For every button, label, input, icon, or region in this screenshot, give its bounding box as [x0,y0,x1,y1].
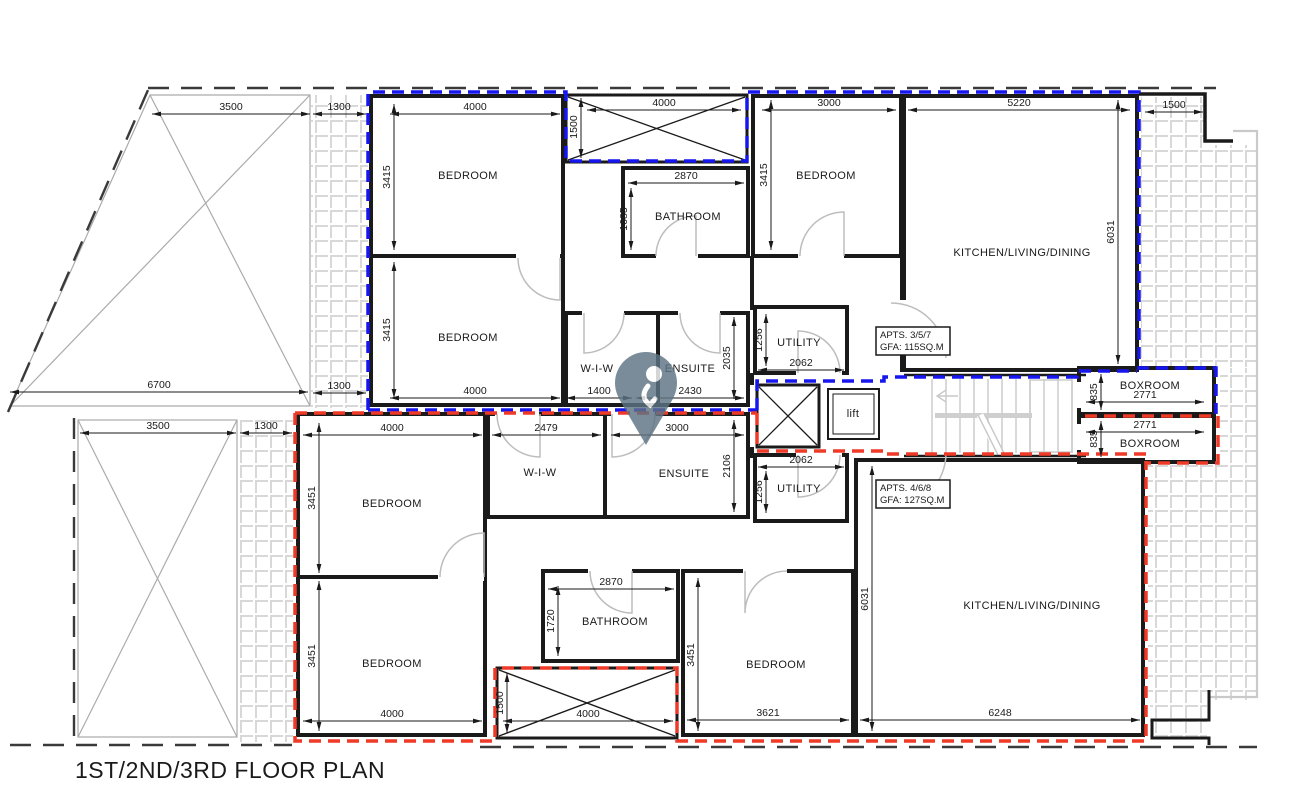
room-label: BATHROOM [655,211,721,223]
dim-label: 2771 [1133,419,1157,431]
apartment-label-lower: APTS. 4/6/8 GFA: 127SQ.M [876,480,950,508]
dim-label: 6700 [147,379,171,391]
dim-label: 3415 [381,165,393,189]
floor-plan-canvas: 3500 1300 4000 1500 4000 3000 5220 1500 … [0,0,1295,799]
room-label: W-I-W [524,467,557,479]
room-label: KITCHEN/LIVING/DINING [963,600,1100,612]
dim-label: 6031 [859,587,871,611]
dim-label: 2035 [721,346,733,370]
room-label: lift [847,408,860,420]
dim-label: 4000 [652,97,676,109]
dim-label: 2106 [721,454,733,478]
stairs [932,379,1072,455]
dim-label: 2062 [789,357,813,369]
room-label: BEDROOM [362,658,422,670]
dim-label: 1500 [494,691,506,715]
dim-label: 6031 [1105,220,1117,244]
dim-label: 1300 [254,420,278,432]
drawing-title: 1ST/2ND/3RD FLOOR PLAN [75,757,385,783]
dim-label: 1300 [327,101,351,113]
dim-label: 1300 [327,380,351,392]
dim-label: 4000 [380,422,404,434]
dim-label: 3621 [756,707,780,719]
dim-label: 3500 [146,420,170,432]
dim-label: 3451 [306,644,318,668]
room-label: BATHROOM [582,616,648,628]
room-label: UTILITY [777,483,821,495]
dim-label: 3500 [219,101,243,113]
dim-label: 3451 [685,643,697,667]
dim-label: 5220 [1007,97,1031,109]
dim-label: 4000 [463,385,487,397]
dim-label: 3415 [381,318,393,342]
apartment-upper-gfa: GFA: 115SQ.M [880,342,944,353]
dim-label: 1720 [545,609,557,633]
dim-label: 2870 [674,170,698,182]
dim-label: 4000 [576,708,600,720]
room-label: BEDROOM [438,170,498,182]
apartment-lower-gfa: GFA: 127SQ.M [880,495,944,506]
dim-label: 3000 [665,422,689,434]
room-label: UTILITY [777,337,821,349]
terrace-cross-left-top [10,95,310,406]
dim-label: 2479 [534,422,558,434]
room-label: W-I-W [581,363,614,375]
room-label: KITCHEN/LIVING/DINING [953,247,1090,259]
room-label: BEDROOM [362,498,422,510]
dim-label: 1256 [753,480,765,504]
room-label: BOXROOM [1120,380,1180,392]
dim-label: 4000 [463,101,487,113]
dim-label: 1256 [753,328,765,352]
dim-label: 2430 [678,385,702,397]
walls [298,94,1233,745]
dim-label: 4000 [380,708,404,720]
dim-label: 6248 [988,707,1012,719]
dim-label: 3000 [817,97,841,109]
apartment-label-upper: APTS. 3/5/7 GFA: 115SQ.M [876,327,950,355]
dim-label: 1500 [568,115,580,139]
room-label: ENSUITE [659,468,709,480]
dim-label: 1500 [1162,99,1186,111]
room-label: BOXROOM [1120,438,1180,450]
dim-label: 2870 [599,576,623,588]
dim-label: 3451 [306,486,318,510]
room-label: BEDROOM [746,659,806,671]
dim-label: 835 [1088,430,1100,448]
terrace-cross-left-bottom [78,420,237,737]
dim-label: 3415 [758,163,770,187]
dim-label: 2062 [789,454,813,466]
apartment-lower-name: APTS. 4/6/8 [880,483,931,494]
dim-label: 835 [1088,383,1100,401]
floor-plan-page: 3500 1300 4000 1500 4000 3000 5220 1500 … [0,0,1295,799]
apartment-upper-name: APTS. 3/5/7 [880,330,931,341]
room-label: BEDROOM [438,332,498,344]
dim-label: 1400 [587,385,611,397]
dim-label: 1685 [618,207,630,231]
room-label: BEDROOM [796,170,856,182]
